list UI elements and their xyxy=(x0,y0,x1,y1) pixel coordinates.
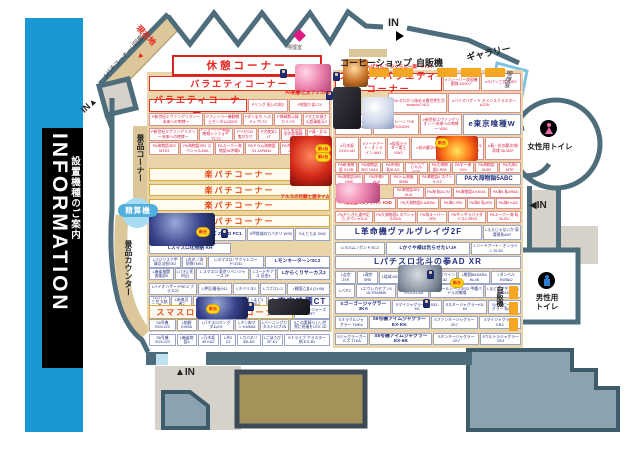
machine-cell: PA海物語3R2 19AX xyxy=(358,162,380,173)
vending-machine-block xyxy=(461,68,481,77)
machine-row: Sミラクルジャグラー TMKAS6号機アイムジャグラーEX-KKSファンキージャ… xyxy=(335,316,521,329)
machine-row: L革命機ヴァルヴレイヴ2FLええじゃないか 東環境系A5Y xyxy=(335,225,521,240)
machine-cell: PAスーパー海物語IN沖縄5 xyxy=(215,142,244,155)
new-machine-badge: 新台 xyxy=(196,227,210,237)
machine-cell: Sマイジャグラー5 KS93-KK xyxy=(392,300,441,314)
machine-cell: Lバキ2 xyxy=(335,284,355,298)
machine-cell: Lかぐや様は告らせたいJA xyxy=(386,242,470,255)
machine-row: P新世紀エヴァンゲリオン～未来への咆哮～Pフィーバー機動戦士ガンダムSEEDPダ… xyxy=(149,113,330,126)
women-toilet-label: 女性用トイレ xyxy=(519,141,581,152)
machine-cell: SスタージャグラーKK-6X xyxy=(443,300,488,314)
mascot-icon xyxy=(427,270,434,279)
machine-row: Sジャグラーガールズ T1KAS6号機アイムジャグラーEX-6KSミンキージャグ… xyxy=(335,333,521,345)
machine-cell: Lコードギアス 反逆4 xyxy=(250,268,276,280)
machine-cell: Lソードアート・オンライン KL2D xyxy=(471,242,521,255)
machine-cell: LパチスロキングダムKH xyxy=(198,319,234,331)
machine-cell: Pフィーバー機動戦士ガンダムSEED xyxy=(204,113,241,126)
machine-cell: PAじゃんじゃん BSR xyxy=(405,162,427,173)
machine-cell: e真・花の慶次!傾奇魂 36-M2F xyxy=(485,137,521,160)
machine-cell: P新世紀エヴァンゲリオン～未来への咆哮～ xyxy=(149,113,203,126)
machine-cell: PA新海物語 GL2B xyxy=(335,162,357,173)
machine-cell: L炎炎ノ消防隊TM91 xyxy=(182,256,206,268)
artwork-azurlane xyxy=(362,97,394,129)
rest-corner-label: 休憩コーナー xyxy=(207,58,288,73)
machine-row: バラエティコーナーPリング 呪いの刻2P地獄少女LT4 xyxy=(149,99,330,112)
machine-cell: Lキン肉マン KM5A5 xyxy=(235,319,258,331)
machine-row: S6号機 ISOLO/3L麻雀物語4L乃木坂46 KA2L炎2 C2Lカバネリ … xyxy=(149,334,330,346)
machine-cell: Sえとたま DM2 xyxy=(295,228,330,241)
machine-cell: Lエウレカセブン5 ULTRA5M5 xyxy=(356,284,397,298)
machine-cell: PA海物語 5L5R xyxy=(475,162,497,173)
machine-cell: PA大海物語5 スペシャルBSA xyxy=(374,211,416,223)
mascot-icon xyxy=(423,299,430,308)
machine-cell: PAギンギラパラダイス2 2R5X xyxy=(448,211,486,223)
machine-cell xyxy=(232,243,330,254)
machine-cell: PA海 私5L7N xyxy=(425,187,452,198)
machine-cell: Sゴーゴージャグラー 3KA xyxy=(335,300,391,314)
machine-cell: PA海物語3R2 HLB xyxy=(393,187,424,198)
machine-cell: PA大海物語5 A4R5C xyxy=(397,198,439,209)
machine-cell: Lチバリヨ2 xyxy=(233,283,259,295)
coffee-shop-label: コーヒーショップ xyxy=(340,56,412,69)
machine-cell: S6号機アイムジャグラーEX-KK xyxy=(369,316,430,329)
machine-row: e乃木坂 2XXX-MJeソードアート・オンライン 6M1e仮面ライダー電王 K… xyxy=(335,137,521,160)
machine-cell: PAドラム海物語IN JAPAN2 xyxy=(245,142,279,155)
machine-cell: Pダンまち ヘスティアLT2 xyxy=(243,113,274,126)
machine-cell: PA海物語3R2 MTE3 xyxy=(149,142,179,155)
information-subtitle: 設置機種のご案内 xyxy=(67,156,81,240)
machine-row: PA新海物語 GL2BPA海物語3R2 19AXPA冲海5 私5LASPAじゃん… xyxy=(335,162,521,173)
machine-cell: Pリゼロ2 鬼がかり xyxy=(234,128,257,141)
artwork-slot-characters xyxy=(196,297,248,319)
checkout-machine-label: 精算機 xyxy=(118,204,158,217)
machine-cell: PA海物語3R2 スペシャルA5A xyxy=(180,142,214,155)
machine-cell: Sトライブ クラスター柄-EX-3D xyxy=(284,334,330,346)
machine-cell: L押忍!番長/911 xyxy=(198,283,233,295)
machine-cell: PAスーパー海 私5LZN xyxy=(487,211,521,223)
machine-cell: L乃木坂46 KA2 xyxy=(198,334,220,346)
machine-cell: Sこの素晴らしい世界に祝福を!-EX-3D xyxy=(290,319,330,331)
artwork-marine xyxy=(336,183,380,203)
machine-cell: P大工の源さん超韋駄天2 xyxy=(303,113,330,126)
machine-cell: Pフィーバー戦姫絶唱シンフォギアLT2 xyxy=(199,128,233,141)
machine-cell: Lからくりサーカス2 xyxy=(277,268,330,280)
machine-cell: Pリング 呪いの刻2 xyxy=(248,99,289,112)
men-toilet-label-2: トイレ xyxy=(528,301,566,312)
machine-row: LバイオハザードRE:2 プラス22L押忍!番長/911Lチバリヨ2Lゴブスレ2… xyxy=(149,283,330,295)
vending-top-label: 自販機 xyxy=(416,56,443,69)
corner-header-label: 楽パチコーナー xyxy=(149,199,330,211)
machine-row: Lバジリスク甲賀忍法帖SE2L炎炎ノ消防隊TM91L/スマスロ/ サクラレコード… xyxy=(149,256,330,268)
entrance-top-arrow-icon xyxy=(396,31,404,41)
machine-cell: L/ヨルムンガンド/SC2 xyxy=(335,242,385,255)
machine-cell: P弾球黙示録カイジ5 xyxy=(274,113,301,126)
corner-header-label: バラエティコーナー xyxy=(149,99,247,112)
machine-cell: L/スマスロ/ サクラレコード/1911 xyxy=(208,256,265,268)
machine-cell: L麻雀格闘倶楽部5 xyxy=(149,268,174,280)
machine-cell: eソードアート・オンライン 6M1 xyxy=(360,137,386,160)
machine-cell: S甲鉄城のカバネリ WS5 xyxy=(247,228,293,241)
machine-row: L/ヨルムンガンド/SC2Lかぐや様は告らせたいJALソードアート・オンライン … xyxy=(335,242,521,255)
entrance-right-label: ◀IN xyxy=(529,200,547,211)
women-icon-head xyxy=(547,123,551,127)
machine-cell: Sミラクルジャグラー TMKA xyxy=(335,316,368,329)
machine-cell: L吉宗 2X9 xyxy=(335,271,356,284)
vending-machine-block xyxy=(509,318,518,331)
machine-row: L麻雀格闘倶楽部5Lバキ2 死刑囚L スマスロ 東京リベンジャーズ 2FLコード… xyxy=(149,268,330,280)
mascot-icon xyxy=(280,69,287,78)
men-icon-body xyxy=(544,279,550,286)
prize-counter-label: 景品カウンター xyxy=(123,240,134,296)
machine-row: S6号機 ISOLO/3L紺碧 KW5ALパチスロキングダムKHLキン肉マン K… xyxy=(149,319,330,331)
vending-machine-block xyxy=(485,68,505,77)
machine-cell: P地獄少女LT4 xyxy=(289,99,330,112)
machine-cell: L麻雀物語4 xyxy=(177,334,197,346)
machine-cell: PA海物語4 スペシャル2 xyxy=(419,174,455,185)
machine-cell: L紺碧 KW5A xyxy=(177,319,197,331)
machine-row: 楽パチコーナー xyxy=(149,199,330,211)
machine-cell: PA海4 私5R5A xyxy=(490,187,521,198)
machine-cell: SミンキージャグラーCK7 xyxy=(433,333,479,345)
machine-cell: S6号機 ISOLO/3 xyxy=(149,334,176,346)
machine-cell: Lダンベル KW5A2 xyxy=(491,271,521,284)
machine-cell: e仮面ライダー電王 KW2 xyxy=(387,137,410,160)
machine-cell: P犬夜叉2 LT xyxy=(258,128,280,141)
machine-cell: e新世紀エヴァンゲリオン ～未来への咆哮～ W5X xyxy=(420,114,462,135)
machine-cell: L戦国乙女4 (2×45) xyxy=(287,283,330,295)
machine-cell: PA海5 私2R5 xyxy=(467,198,495,209)
machine-cell: Lバジリスク甲賀忍法帖SE2 xyxy=(149,256,181,268)
new-machine-badge: 新2台 xyxy=(315,152,331,162)
men-icon-head xyxy=(545,275,549,279)
vending-machine-block xyxy=(509,302,518,315)
men-toilet-icon xyxy=(538,272,555,289)
machine-cell: L革命機ヴァルヴレイヴ2F xyxy=(335,225,482,240)
mascot-icon xyxy=(333,72,340,81)
machine-cell: eRe:ゼロから始める異世界生活 season2 N13 xyxy=(388,93,447,113)
machine-cell: Lゴブスレ2 xyxy=(260,283,286,295)
prize-corner-label: 景品コーナー xyxy=(135,134,146,182)
machine-cell: P新世紀エヴァンゲリオン～未来への咆哮～ xyxy=(149,128,198,141)
machine-cell: Lバキ2 死刑囚 xyxy=(175,268,196,280)
vending-machine-block xyxy=(509,286,518,299)
machine-cell: S6号機 ISOLO/3 xyxy=(149,319,176,331)
entrance-bottom-label: ▲IN xyxy=(175,367,195,378)
machine-cell: LモンキーターンSC2 xyxy=(265,256,330,268)
machine-cell: L スマスロ 東京リベンジャーズ 2F xyxy=(196,268,249,280)
machine-cell: SウルトラジャグラーVK3 xyxy=(480,333,521,345)
machine-cell: PA海5 KAS xyxy=(496,198,521,209)
machine-cell: PA海物語4 KSGA xyxy=(453,187,489,198)
new-machine-badge: 新台 xyxy=(435,138,449,148)
machine-cell: L政宗 5R5 xyxy=(357,271,378,284)
machine-caption: PA熱響!乙女フェスN2 xyxy=(236,91,330,96)
women-toilet-icon xyxy=(540,120,557,137)
entrance-top-label: IN xyxy=(388,17,399,29)
machine-cell: PAすー海 2X9 xyxy=(452,162,474,173)
new-machine-badge: 新台 xyxy=(450,278,464,288)
mascot-icon xyxy=(247,302,254,311)
machine-cell: PA海5 2R9 xyxy=(440,198,465,209)
machine-cell: PAやじきた道中記乃 スペシャルA xyxy=(335,211,373,223)
machine-cell: LバイオハザードRE:2 プラス22 xyxy=(149,283,197,295)
women-icon-body xyxy=(545,127,553,134)
artwork-photo xyxy=(268,299,310,315)
artwork-kakegurui xyxy=(333,87,361,129)
vending-right-label: 自販機 xyxy=(494,286,504,307)
artwork-idol-girls xyxy=(295,64,331,92)
machine-cell: eバイオハザード ネメシスクラスター-AJSN xyxy=(448,93,521,113)
machine-cell: PAトム競艇 5R85 xyxy=(390,174,418,185)
machine-cell: SファンキージャグラーZK7 xyxy=(431,316,478,329)
artwork-hokuto xyxy=(398,265,442,292)
machine-cell: Lごほうび 2F-K1 xyxy=(262,334,284,346)
floor-map: INFORMATION 設置機種のご案内 バラエティコーナーバラエティコーナーP… xyxy=(0,0,640,452)
machine-cell: PA大海4 MTE xyxy=(499,162,521,173)
smoking-room-top-label: 喫煙室 xyxy=(287,44,302,51)
new-machine-badge: 新台 xyxy=(206,304,220,314)
machine-cell: Lバーニングカタストロフ2N xyxy=(260,319,290,331)
machine-cell: PA大海物語5ABC xyxy=(456,174,521,185)
machine-cell: PA冲海5 私5LAS xyxy=(382,162,404,173)
machine-cell: L炎2 C2 xyxy=(220,334,236,346)
machine-row: PAやじきた道中記乃 スペシャルAPA大海物語5 スペシャルBSAPA海スーパー… xyxy=(335,211,521,223)
machine-caption: アルスの巨獣と遊タイム xyxy=(238,195,330,200)
machine-cell: e東京喰種W xyxy=(463,114,521,135)
machine-cell: e乃木坂 2XXX-MJ xyxy=(335,137,359,160)
machine-cell: PA海スーパー 2R5 xyxy=(417,211,447,223)
machine-cell: Lカバネリ 55LAS xyxy=(237,334,260,346)
machine-cell: S6号機アイムジャグラーEX-6K xyxy=(369,333,432,345)
machine-cell: Sジャグラーガールズ T1KA xyxy=(335,333,368,345)
machine-cell: PA大海物語5 R85 xyxy=(429,162,451,173)
mascot-icon xyxy=(221,229,228,238)
machine-cell: Lええじゃないか 東環境系A5Y xyxy=(483,225,521,240)
